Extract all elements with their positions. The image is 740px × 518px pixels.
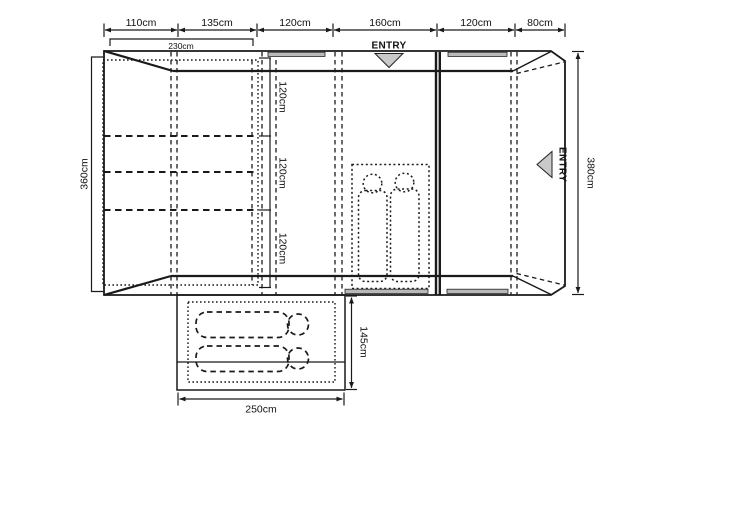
optional-bedroom-area — [352, 165, 429, 289]
entry-arrow-left-icon — [537, 152, 552, 178]
bed-section-dimensions: 120cm 120cm 120cm — [259, 58, 289, 288]
left-height-dimension: 360cm — [79, 57, 104, 292]
sleeping-bag — [112, 138, 247, 166]
tent-floorplan-page: 110cm 135cm 120cm 160cm 120cm 80cm 230cm — [0, 0, 740, 518]
dashed-sleeping-bag — [196, 312, 309, 338]
tent-floorplan-diagram: 110cm 135cm 120cm 160cm 120cm 80cm 230cm — [0, 0, 740, 518]
right-height-dimension: 380cm — [572, 52, 597, 295]
top-dim-1: 110cm — [126, 17, 157, 29]
vent-strip — [447, 289, 508, 293]
right-height-dim: 380cm — [585, 157, 597, 189]
dotted-sleeping-bag — [391, 173, 420, 281]
entry-side-label: ENTRY — [557, 147, 568, 182]
annex-depth-dimension: 145cm — [346, 296, 370, 390]
top-dim-4: 160cm — [369, 17, 401, 29]
top-dim-5: 120cm — [460, 17, 492, 29]
top-entry: ENTRY — [371, 41, 406, 68]
sleeping-bag — [112, 102, 247, 130]
side-entry: ENTRY — [537, 147, 568, 182]
dim-bracket — [92, 57, 104, 292]
left-height-dim: 360cm — [79, 158, 91, 190]
dotted-sleeping-bag — [359, 174, 388, 281]
top-dim-3: 120cm — [279, 17, 311, 29]
sleeping-bag — [112, 214, 247, 242]
entry-arrow-down-icon — [375, 54, 403, 68]
bed-section-dim-2: 120cm — [277, 157, 289, 189]
sleeping-bag — [112, 72, 247, 100]
dashed-sleeping-bag — [196, 346, 309, 372]
wall-slope-dashed — [517, 62, 565, 74]
top-dimension-row: 110cm 135cm 120cm 160cm 120cm 80cm — [104, 17, 565, 37]
wall-slope-dashed — [517, 274, 565, 286]
vent-strip — [268, 52, 325, 56]
entry-top-label: ENTRY — [371, 41, 406, 52]
vent-strips — [268, 52, 508, 293]
top-dim-2: 135cm — [201, 17, 233, 29]
annex-width-dim: 250cm — [245, 404, 277, 416]
annex-depth-dim: 145cm — [358, 326, 370, 358]
vent-strip — [345, 289, 428, 293]
wall-slope-line — [513, 276, 551, 295]
sleeping-bag — [112, 174, 247, 202]
bed-section-dim-3: 120cm — [277, 233, 289, 265]
bed-section-dim-1: 120cm — [277, 81, 289, 113]
sleeping-bag — [112, 246, 247, 274]
annex-width-dimension: 250cm — [178, 393, 344, 416]
vent-strip — [448, 52, 507, 56]
top-dim-6: 80cm — [527, 17, 553, 29]
wall-slope-line — [513, 52, 551, 72]
annex-outline — [177, 295, 345, 390]
inner-width-dimension: 230cm — [110, 39, 253, 51]
annex-groundsheet — [188, 302, 335, 382]
annex — [177, 295, 345, 390]
wall-slope-line — [104, 51, 173, 71]
inner-width-dim: 230cm — [168, 41, 194, 51]
